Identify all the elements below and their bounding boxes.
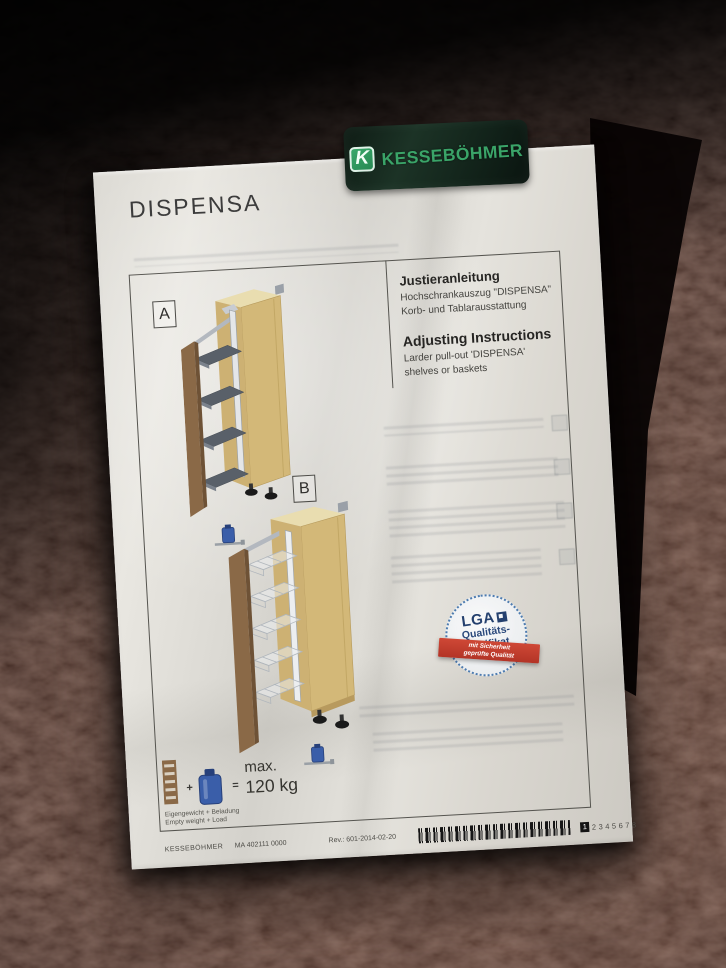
photo-scene: DISPENSA K KESSEBÖHMER Justieranleitung … (0, 0, 726, 968)
brand-sticker: K KESSEBÖHMER (343, 119, 530, 191)
page-title: DISPENSA (128, 189, 262, 223)
cabinet-a-illustration (177, 282, 302, 520)
footer-doc-number: MA 402111 0000 (235, 840, 287, 850)
instructions-en: Adjusting Instructions Larder pull-out '… (402, 325, 553, 381)
page-number: 4 (605, 821, 610, 830)
page-number: 3 (598, 822, 603, 831)
equals-sign: = (232, 779, 239, 791)
lga-quality-badge: LGA Qualitäts- Zertifikat mit Sicherheit… (440, 589, 533, 682)
lga-box-icon (496, 611, 507, 622)
page-number: 5 (612, 821, 617, 830)
page-number: 2 (592, 822, 597, 831)
badge-circle: LGA Qualitäts- Zertifikat (440, 589, 533, 682)
k-monogram-icon: K (349, 146, 375, 172)
barcode (418, 820, 571, 843)
page-number: 7 (625, 820, 630, 829)
footer-brand: KESSEBÖHMER (165, 843, 224, 853)
max-kg: 120 kg (245, 774, 299, 798)
instructions-de: Justieranleitung Hochschrankauszug "DISP… (399, 265, 552, 320)
max-label: max. (244, 756, 297, 776)
max-load-value: max. 120 kg (244, 756, 299, 798)
plus-sign: + (186, 782, 193, 794)
load-canister-icon (194, 766, 226, 808)
page-number-current: 1 (580, 822, 590, 832)
load-point-a-icon (213, 523, 246, 551)
door-panel (228, 548, 259, 753)
max-load-group: + = max. 120 kg Eigengewicht + Beladung … (162, 745, 386, 827)
adjustable-feet (312, 708, 349, 730)
page-number: 8 (632, 820, 637, 829)
brand-name: KESSEBÖHMER (381, 139, 524, 169)
instruction-sheet: DISPENSA K KESSEBÖHMER Justieranleitung … (93, 145, 633, 870)
footer-revision: Rev.: 601-2014-02-20 (328, 834, 396, 845)
page-indicator: 1 2 3 4 5 6 7 8 (580, 819, 636, 832)
shelf-unit-icon (162, 757, 181, 808)
figure-a-label: A (152, 300, 176, 328)
page-number: 6 (618, 821, 623, 830)
